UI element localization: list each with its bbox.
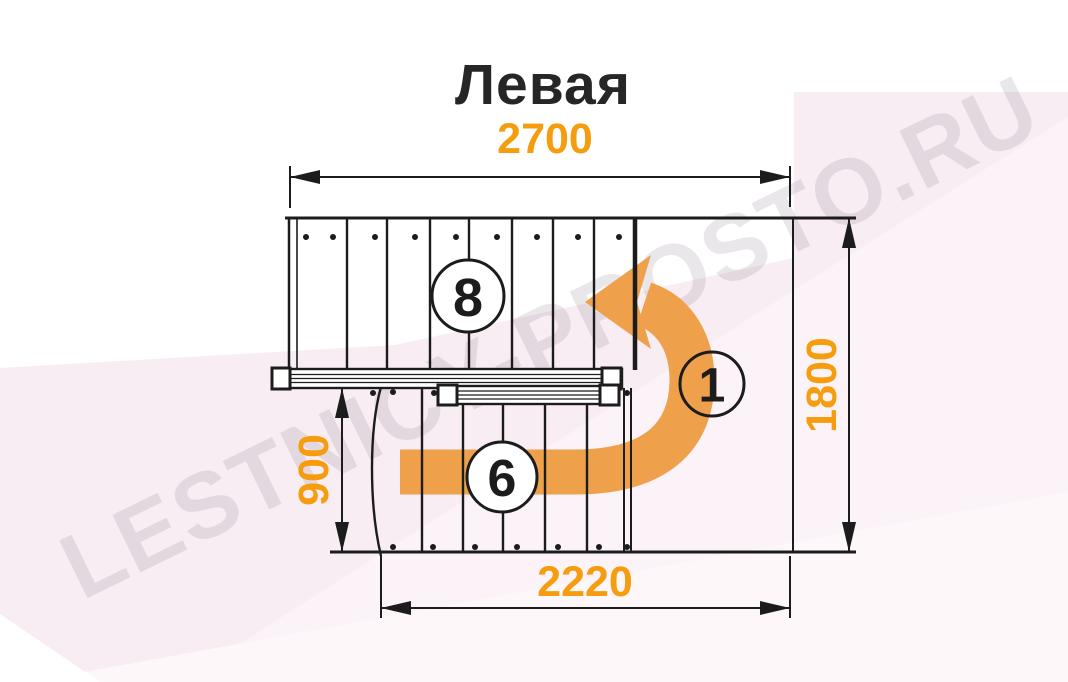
landing-beam-lower [438, 385, 619, 405]
plan-linework: 2700 1800 900 2220 8 [0, 0, 1068, 682]
dimension-top [290, 166, 790, 208]
dimension-top-value: 2700 [497, 115, 593, 163]
step-marker-1-value: 1 [699, 360, 726, 413]
step-marker-6-value: 6 [488, 450, 517, 508]
step-marker-6: 6 [467, 442, 537, 512]
upper-flight-screws [303, 234, 622, 240]
dimension-right-value: 1800 [798, 337, 846, 433]
step-marker-8: 8 [432, 260, 504, 332]
upper-flight [285, 218, 856, 370]
stair-plan-diagram: LESTNICY-PROSTO.RU Левая [0, 0, 1068, 682]
dimension-bottom-value: 2220 [537, 558, 633, 606]
step-marker-8-value: 8 [453, 268, 483, 328]
dimension-left-value: 900 [290, 434, 338, 506]
